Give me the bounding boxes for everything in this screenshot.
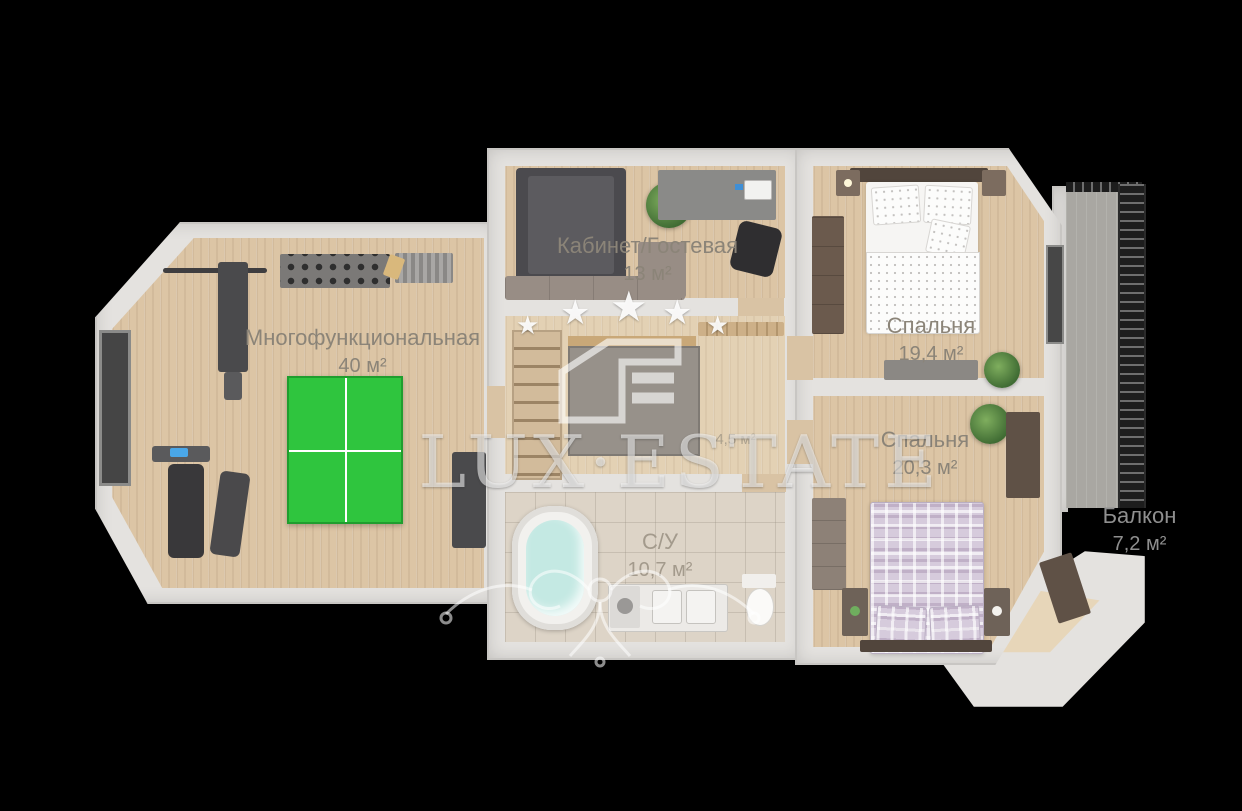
dumbbell-rack [280,254,390,288]
door-opening [742,474,786,492]
sink-right [686,590,716,624]
room-label-balcony: Балкон 7,2 м² [1072,502,1207,557]
room-area: 10,7 м² [580,557,740,583]
gym-wall-bench [395,253,453,283]
toilet-bowl [746,588,774,626]
washing-machine-door [617,598,633,614]
workout-bench [452,452,486,548]
door-opening [487,386,505,438]
room-label-bedroom-1: Спальня 19,4 м² [846,312,1016,367]
bed1-pillow-left [871,184,922,225]
bed2-dresser [1006,412,1040,498]
toilet-tank [742,574,776,588]
room-label-multifunctional: Многофункциональная 40 м² [240,324,485,379]
room-name: Кабинет/Гостевая [540,232,755,261]
lamp-icon [844,179,852,187]
room-area: 40 м² [240,353,485,379]
barbell-icon [163,268,267,273]
pingpong-center-line [345,378,347,522]
room-area: 4,5 м² [688,430,783,450]
treadmill-belt [168,464,204,558]
room-name: Балкон [1072,502,1207,531]
room-label-office-guest: Кабинет/Гостевая 13 м² [540,232,755,287]
door-opening [738,298,784,316]
bed2-nightstand-left [842,588,868,636]
bathtub-water [526,520,584,616]
bed1-nightstand-left [836,170,860,196]
bed2-headboard [860,640,992,652]
floor-plan-render: Многофункциональная 40 м² Кабинет/Гостев… [0,0,1242,811]
bed1-pillow-right [923,185,973,225]
gym-window [99,330,131,486]
room-label-hall: 4,5 м² [688,430,783,450]
bed1-nightstand-right [982,170,1006,196]
laptop-screen [735,184,743,190]
room-area: 7,2 м² [1072,531,1207,557]
room-label-bathroom: С/У 10,7 м² [580,528,740,583]
room-label-bedroom-2: Спальня 20,3 м² [840,426,1010,481]
bed2-wardrobe [812,498,846,590]
room-area: 19,4 м² [846,341,1016,367]
lamp-icon [992,606,1002,616]
stairwell-void [568,346,700,456]
bed1-wardrobe [812,216,844,334]
room-name: С/У [580,528,740,557]
pingpong-table [287,376,403,524]
bed2-nightstand-right [984,588,1010,636]
balcony-railing [1118,184,1146,508]
stairwell-shelf [568,336,696,346]
door-opening [787,336,813,380]
washing-machine [610,586,640,628]
room-area: 20,3 м² [840,455,1010,481]
wood-pallet [698,322,784,336]
sink-left [652,590,682,624]
laptop-icon [744,180,772,200]
door-opening [787,420,813,464]
room-name: Спальня [846,312,1016,341]
bed1-headboard [850,168,988,182]
room-name: Спальня [840,426,1010,455]
treadmill-screen [170,448,188,457]
room-area: 13 м² [540,261,755,287]
room-balcony [1052,182,1148,516]
balcony-door [1046,245,1064,344]
lamp-icon [850,606,860,616]
balcony-floor [1066,192,1120,508]
staircase [512,330,562,480]
room-name: Многофункциональная [240,324,485,353]
